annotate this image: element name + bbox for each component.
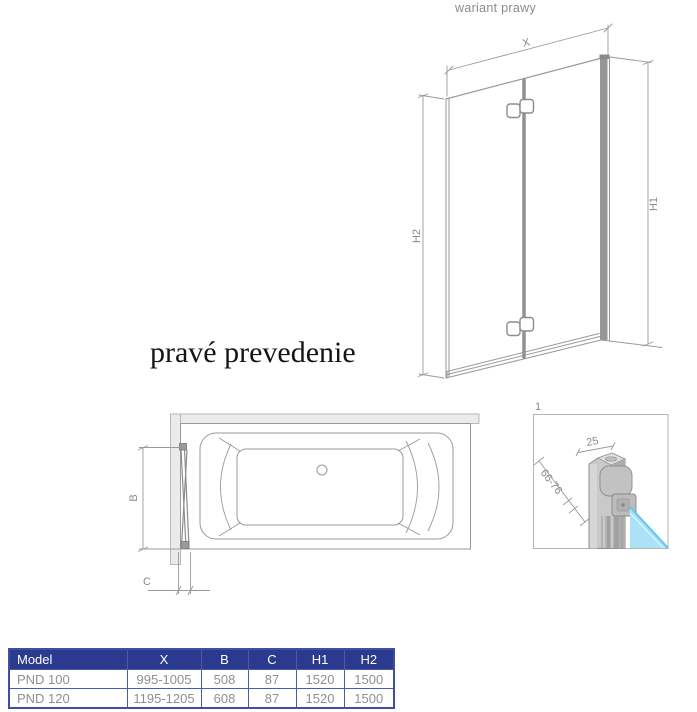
header-x: X xyxy=(127,649,201,670)
header-h1: H1 xyxy=(296,649,344,670)
dim-h1 xyxy=(610,57,653,346)
detail-view: 1 xyxy=(534,401,669,549)
spec-table: Model X B C H1 H2 PND 100 995-1005 508 8… xyxy=(8,648,395,709)
cell-h2: 1500 xyxy=(344,670,394,689)
cell-x: 995-1005 xyxy=(127,670,201,689)
cell-model: PND 120 xyxy=(9,689,127,709)
cell-c: 87 xyxy=(248,670,296,689)
table-row: PND 120 1195-1205 608 87 1520 1500 xyxy=(9,689,394,709)
top-view: B C xyxy=(128,414,479,595)
hinge-top xyxy=(507,100,534,118)
dim-x xyxy=(445,24,612,96)
cell-h1: 1520 xyxy=(296,670,344,689)
wall-top xyxy=(171,414,480,424)
page: wariant prawy pravé prevedenie xyxy=(0,0,697,712)
detail-number: 1 xyxy=(535,401,541,413)
wall-profile xyxy=(600,56,608,340)
header-c: C xyxy=(248,649,296,670)
dim-label-b: B xyxy=(128,494,140,501)
cell-h2: 1500 xyxy=(344,689,394,709)
cell-b: 608 xyxy=(201,689,248,709)
table-row: PND 100 995-1005 508 87 1520 1500 xyxy=(9,670,394,689)
dim-label-25: 25 xyxy=(585,435,599,449)
header-b: B xyxy=(201,649,248,670)
wall-left xyxy=(171,414,181,565)
header-h2: H2 xyxy=(344,649,394,670)
cell-model: PND 100 xyxy=(9,670,127,689)
cell-b: 508 xyxy=(201,670,248,689)
front-view: X H2 H1 xyxy=(411,24,662,378)
dim-label-c: C xyxy=(143,576,151,588)
table-header-row: Model X B C H1 H2 xyxy=(9,649,394,670)
technical-drawing: X H2 H1 xyxy=(0,0,697,645)
bathtub-rim xyxy=(181,424,471,550)
dim-label-h2: H2 xyxy=(411,229,423,243)
header-model: Model xyxy=(9,649,127,670)
dim-label-x: X xyxy=(521,36,532,50)
cell-c: 87 xyxy=(248,689,296,709)
dim-label-h1: H1 xyxy=(648,197,660,211)
hinge-bottom xyxy=(507,318,534,336)
cell-x: 1195-1205 xyxy=(127,689,201,709)
cell-h1: 1520 xyxy=(296,689,344,709)
